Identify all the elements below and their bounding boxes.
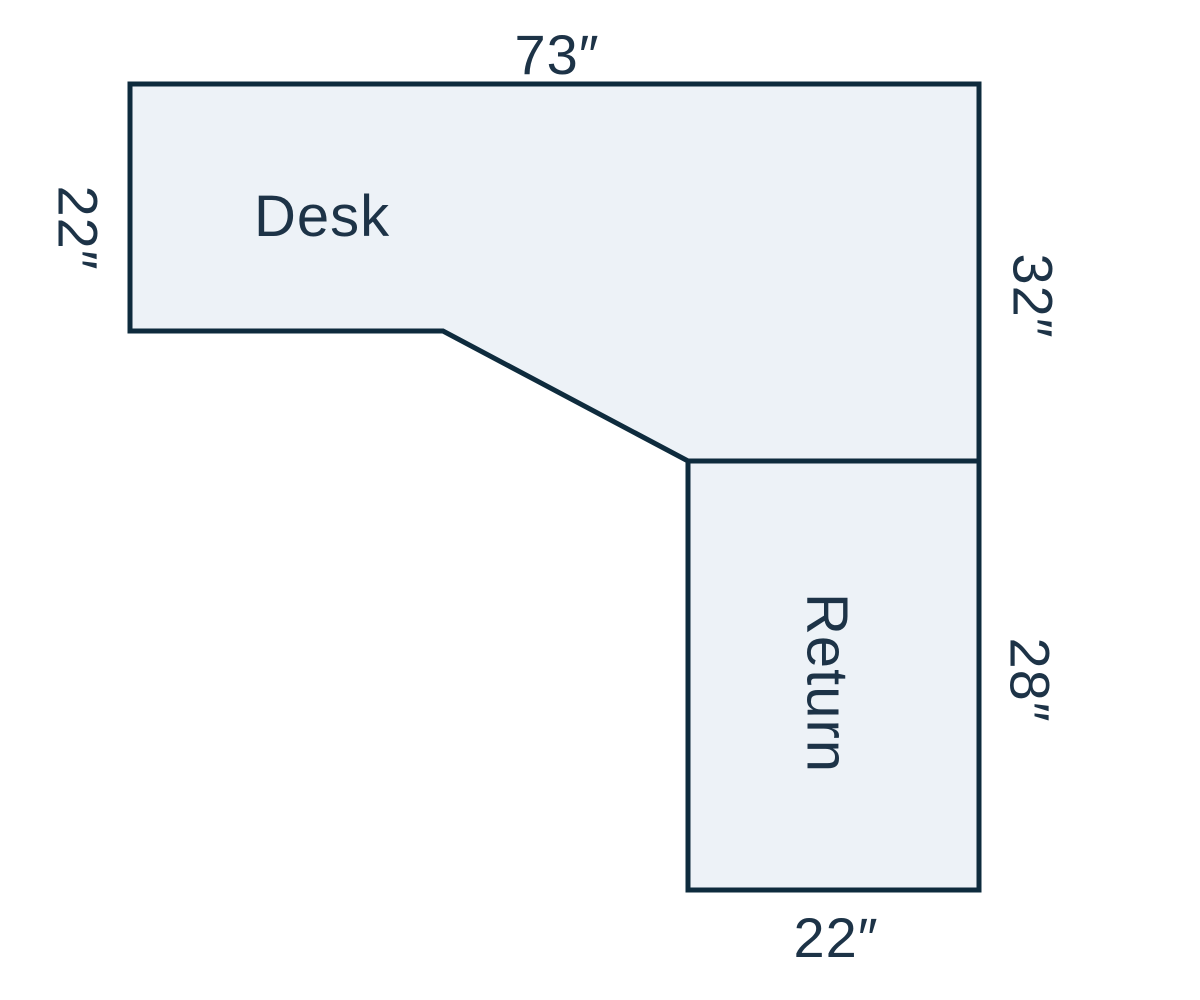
desk-right-dimension-label: 32″ xyxy=(1002,253,1065,338)
desk-diagram-canvas: 73″ 22″ 32″ 28″ 22″ Desk Return xyxy=(0,0,1200,1000)
desk-surface-shape xyxy=(130,84,979,461)
return-part-label: Return xyxy=(795,593,860,773)
desk-part-label: Desk xyxy=(254,184,390,249)
desk-dimension-diagram: 73″ 22″ 32″ 28″ 22″ Desk Return xyxy=(0,0,1200,1000)
desk-left-dimension-label: 22″ xyxy=(47,185,110,270)
return-right-dimension-label: 28″ xyxy=(999,637,1062,722)
return-bottom-dimension-label: 22″ xyxy=(793,906,878,969)
desk-top-dimension-label: 73″ xyxy=(514,23,599,86)
